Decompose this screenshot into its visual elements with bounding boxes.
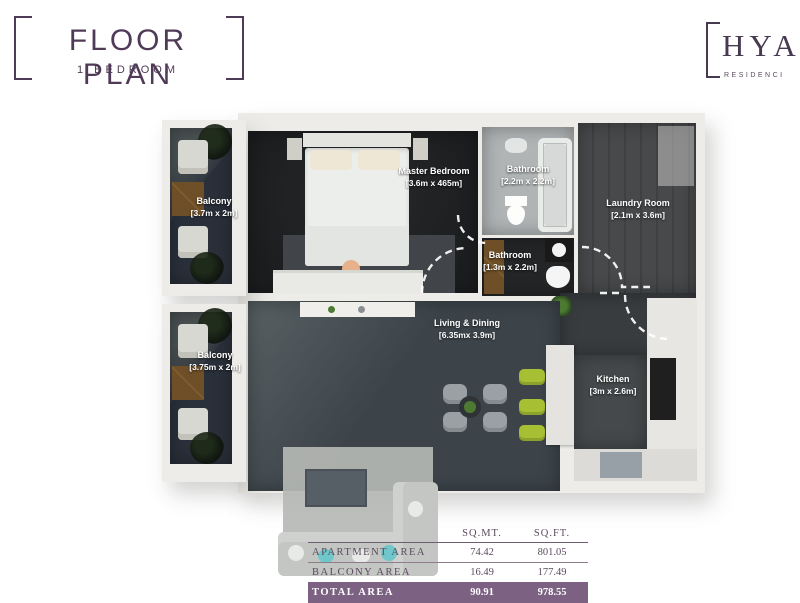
door-swing-arcs	[160, 112, 705, 494]
door-arc-entry	[600, 293, 669, 339]
table-row-apartment-area: APARTMENT AREA 74.42 801.05	[308, 542, 588, 562]
pillow-icon	[288, 545, 304, 561]
door-arc-bathroom	[458, 215, 486, 243]
logo-text: HYA	[722, 28, 800, 64]
door-arc-bedroom	[422, 248, 467, 293]
page-title: FLOOR PLAN	[34, 24, 222, 92]
col-header-sqft: SQ.FT.	[516, 528, 588, 539]
area-table-header-row: SQ.MT. SQ.FT.	[308, 524, 588, 542]
col-header-sqmt: SQ.MT.	[448, 528, 516, 539]
page-subtitle: 1 BEDROOM	[34, 64, 222, 76]
brand-logo: HYA RESIDENCI	[706, 20, 800, 90]
door-arc-laundry	[582, 247, 650, 287]
table-row-balcony-area: BALCONY AREA 16.49 177.49	[308, 562, 588, 582]
logo-bracket-icon	[706, 22, 720, 78]
pillow-icon	[408, 501, 423, 517]
floor-plan-render: Balcony [3.7m x 2m] Balcony [3.75m x 2m]…	[160, 112, 705, 494]
floor-plan-title-block: FLOOR PLAN 1 BEDROOM	[14, 16, 244, 86]
title-bracket-right-icon	[226, 16, 244, 80]
area-table: SQ.MT. SQ.FT. APARTMENT AREA 74.42 801.0…	[308, 524, 588, 603]
logo-tagline: RESIDENCI	[724, 72, 785, 79]
title-bracket-left-icon	[14, 16, 32, 80]
